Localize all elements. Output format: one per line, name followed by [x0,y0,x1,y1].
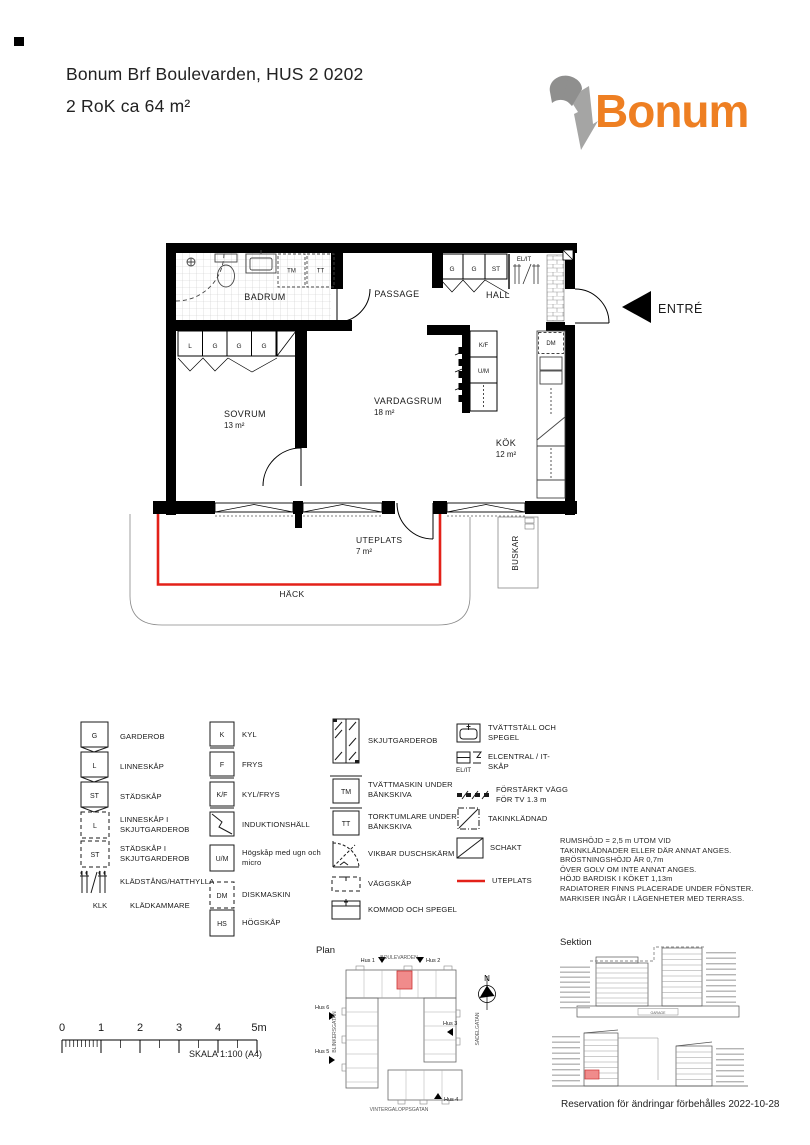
hus2-label: Hus 2 [426,958,440,964]
um-label: U/M [478,369,489,375]
kf-label: K/F [479,343,489,349]
svg-text:G: G [92,733,97,740]
legend-item-hogskap-ugn-micro: U/M Högskåp med ugn och micro [208,843,334,873]
floorplan-drawing: BADRUM PASSAGE HALL SOVRUM 13 m² VARDAGS… [130,243,703,625]
diskmaskin-symbol: DM [208,880,236,910]
badrum-tile-floor [176,253,331,320]
vikbar-duschskarm-symbol [330,838,362,870]
legend-item-tvattmaskin: TM TVÄTTMASKIN UNDER BÄNKSKIVA [330,774,463,806]
svg-text:K: K [220,732,225,739]
passage-label: PASSAGE [374,289,419,299]
hus5-label: Hus 5 [315,1049,329,1055]
street-right-label: SADELGATAN [475,1012,481,1045]
hack-label: HÄCK [279,589,304,599]
legend-item-diskmaskin: DM DISKMASKIN [208,880,334,910]
legend-item-schakt: SCHAKT [456,836,568,860]
uteplats-label: UTEPLATS [356,535,403,545]
sektion: Sektion GARAGE [552,937,748,1086]
schakt-symbol [456,836,484,860]
sovrum-cabinet-g1: G [212,343,217,350]
floor-level-micro-labels-lower [552,1036,744,1082]
torktumlare-symbol: TT [330,806,362,838]
kitchen-sink [540,357,562,370]
svg-text:U/M: U/M [216,856,229,863]
legend-item-kladstang: KLÄDSTÅNG/HATTHYLLA [78,867,212,897]
legend-item-stadskap-skjut: ST STÄDSKÅP I SKJUTGARDEROB [78,838,212,870]
elit-closet-hangers-icon [513,264,540,284]
windows [215,503,525,516]
terrace-door [397,503,433,539]
legend-item-kladkammare: KLK KLÄDKAMMARE [78,901,222,911]
tm-label: TM [287,269,296,275]
legend-item-duschskarm: VIKBAR DUSCHSKÄRM [330,838,463,870]
badrum-label: BADRUM [244,292,285,302]
kok-label: KÖK [496,438,516,448]
buskar-label: BUSKAR [511,535,520,570]
compass-icon: N [479,974,496,1010]
note-line: BRÖSTNINGSHÖJD ÄR 0,7m [560,855,755,865]
kok-area: 12 m² [496,450,517,459]
note-line: RADIATORER FINNS PLACERADE UNDER FÖNSTER… [560,884,755,894]
legend-item-takinkladnad: TAKINKLÄDNAD [456,806,566,832]
klk-code: KLK [78,901,122,910]
legend-item-induktionshall: INDUKTIONSHÄLL [208,810,334,840]
elcentral-symbol [456,750,482,766]
uteplats-area: 7 m² [356,547,372,556]
entry-brick-wall [547,255,564,321]
sovrum-door [263,448,301,486]
entre-arrow-icon [622,291,651,323]
note-line: TAKINKLÄDNADER ELLER DÄR ANNAT ANGES. [560,846,755,856]
tt-label: TT [317,269,325,275]
hall-cabinet-g2: G [471,266,476,273]
legend-item-kommod: KOMMOD OCH SPEGEL [330,898,463,922]
hus6-label: Hus 6 [315,1005,329,1011]
scale-label: SKALA 1:100 (A4) [189,1049,262,1059]
hus3-label: Hus 3 [443,1021,457,1027]
sovrum-cabinet-g2: G [236,343,241,350]
svg-text:K/F: K/F [217,792,228,799]
vardagsrum-label: VARDAGSRUM [374,396,442,406]
svg-text:L: L [93,823,97,830]
frys-symbol: F [208,750,236,780]
siteplan-title: Plan [316,945,335,956]
legend-item-kyl: K KYL [208,720,334,750]
tvattstall-spegel-symbol [456,722,482,744]
elit-label: EL/IT [517,257,532,263]
vardagsrum-area: 18 m² [374,408,395,417]
hogskap-symbol: HS [208,908,236,938]
vaggskap-symbol [330,874,362,894]
svg-text:TT: TT [342,821,351,828]
uteplats-line-symbol [456,876,486,886]
induktionshall-symbol [208,810,236,840]
kyl-symbol: K [208,720,236,750]
garage-label: GARAGE [651,1011,667,1015]
sektion-title: Sektion [560,937,592,948]
hall-label: HALL [486,290,510,300]
tvattmaskin-symbol: TM [330,774,362,806]
hus4-label: Hus 4 [444,1097,458,1103]
entre-label: ENTRÉ [658,301,703,316]
scale-bar: 0 1 2 3 4 5m SKALA 1:100 (A4) [59,1022,267,1059]
scale-tick-0: 0 [59,1022,65,1034]
note-line: MARKISER INGÅR I LÄGENHETER MED TERRASS. [560,894,755,904]
scale-tick-1: 1 [98,1022,104,1034]
takinkladnad-symbol [456,806,482,832]
house-markers [329,957,453,1099]
legend-item-uteplats: UTEPLATS [456,876,570,886]
legend-item-tvattstall: TVÄTTSTÄLL OCH SPEGEL [456,722,566,744]
sovrum-wardrobes [178,331,296,372]
legend-item-linneskap-skjut: L LINNESKÅP I SKJUTGARDEROB [78,809,212,841]
note-line: RUMSHÖJD = 2,5 m UTOM VID [560,836,755,846]
legend-item-kylfrys: K/F KYL/FRYS [208,780,334,810]
note-line: ÖVER GOLV OM INTE ANNAT ANGES. [560,865,755,875]
street-bottom-label: VINTERGALOPPSGATAN [370,1107,429,1113]
kitchen-counter [537,331,565,498]
notes-block: RUMSHÖJD = 2,5 m UTOM VID TAKINKLÄDNADER… [560,836,755,903]
scale-tick-4: 4 [215,1022,221,1034]
legend-item-hogskap: HS HÖGSKÅP [208,908,334,938]
legend-item-elcentral: EL/IT ELCENTRAL / IT-SKÅP [456,750,566,774]
badrum-door [337,289,370,322]
hall-cabinet-g1: G [449,266,454,273]
legend-item-frys: F FRYS [208,750,334,780]
svg-text:L: L [93,763,97,770]
hus1-label: Hus 1 [361,958,375,964]
dm-label: DM [546,341,555,347]
kladstang-hatthylla-symbol [78,867,112,897]
site-plan: Plan [315,945,496,1113]
svg-text:ST: ST [90,793,100,800]
legend-item-torktumlare: TT TORKTUMLARE UNDER BÄNKSKIVA [330,806,463,838]
hall-cabinets [441,254,509,294]
note-line: HÖJD BARDISK I KÖKET 1,13m [560,874,755,884]
kommod-spegel-symbol [330,898,362,922]
sovrum-cabinet-g3: G [261,343,266,350]
svg-text:ST: ST [91,852,101,859]
legend-item-skjutgarderob: SKJUTGARDEROB [330,716,463,766]
floorplan-document-page: Bonum Brf Boulevarden, HUS 2 0202 2 RoK … [0,0,810,1145]
sovrum-cabinet-l: L [188,343,192,350]
stadskap-skjut-symbol: ST [78,838,112,870]
svg-text:F: F [220,762,224,769]
entry-door [575,289,609,323]
hall-cabinet-st: ST [492,266,500,273]
legend-item-vaggskap: VÄGGSKÅP [330,874,463,894]
legend-item-forstarkt-vagg: FÖRSTÄRKT VÄGG FÖR TV 1.3 m [456,785,574,805]
elit-sub-label: EL/IT [456,767,471,774]
plan-drawing-svg: BADRUM PASSAGE HALL SOVRUM 13 m² VARDAGS… [0,0,810,1145]
scale-tick-5: 5m [251,1022,266,1034]
hogskap-ugn-micro-symbol: U/M [208,843,236,873]
svg-text:TM: TM [341,789,351,796]
sovrum-area: 13 m² [224,421,245,430]
reservation-note: Reservation för ändringar förbehålles 20… [561,1098,780,1110]
hedge-outline [130,514,470,625]
scale-tick-3: 3 [176,1022,182,1034]
sovrum-label: SOVRUM [224,409,266,419]
linneskap-skjut-symbol: L [78,809,112,841]
street-left-label: BLINKERSGATAN [332,1011,338,1053]
street-top-label: BOULEVARDEN [380,955,418,961]
skjutgarderob-symbol [330,716,362,766]
scale-tick-2: 2 [137,1022,143,1034]
forstarkt-vagg-symbol [456,787,490,803]
highlighted-unit [397,971,412,989]
kylfrys-symbol: K/F [208,780,236,810]
svg-text:DM: DM [217,893,228,900]
highlighted-floor-cell [585,1070,599,1079]
svg-text:HS: HS [217,921,227,928]
